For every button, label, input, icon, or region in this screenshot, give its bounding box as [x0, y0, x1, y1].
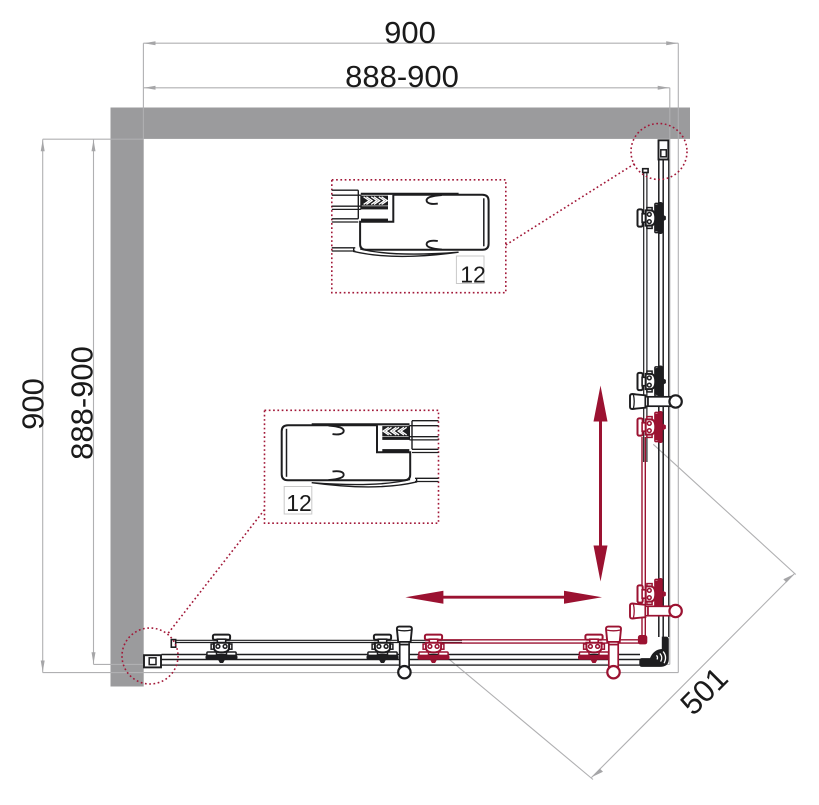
- svg-text:900: 900: [384, 15, 436, 50]
- svg-text:12: 12: [460, 262, 486, 288]
- svg-text:501: 501: [673, 660, 734, 721]
- svg-text:12: 12: [286, 490, 312, 516]
- svg-text:900: 900: [16, 378, 51, 430]
- svg-text:888-900: 888-900: [65, 346, 100, 460]
- svg-text:888-900: 888-900: [345, 59, 459, 94]
